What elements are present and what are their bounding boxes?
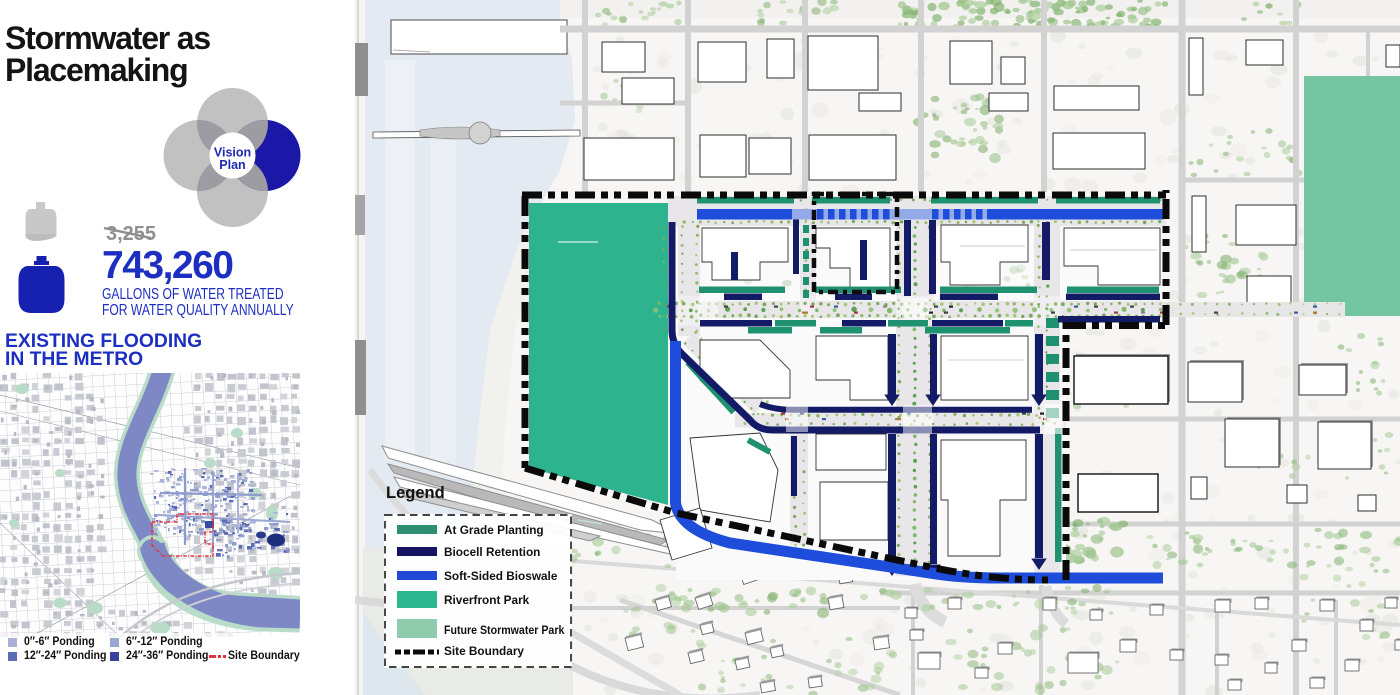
- svg-text:Plan: Plan: [219, 158, 245, 172]
